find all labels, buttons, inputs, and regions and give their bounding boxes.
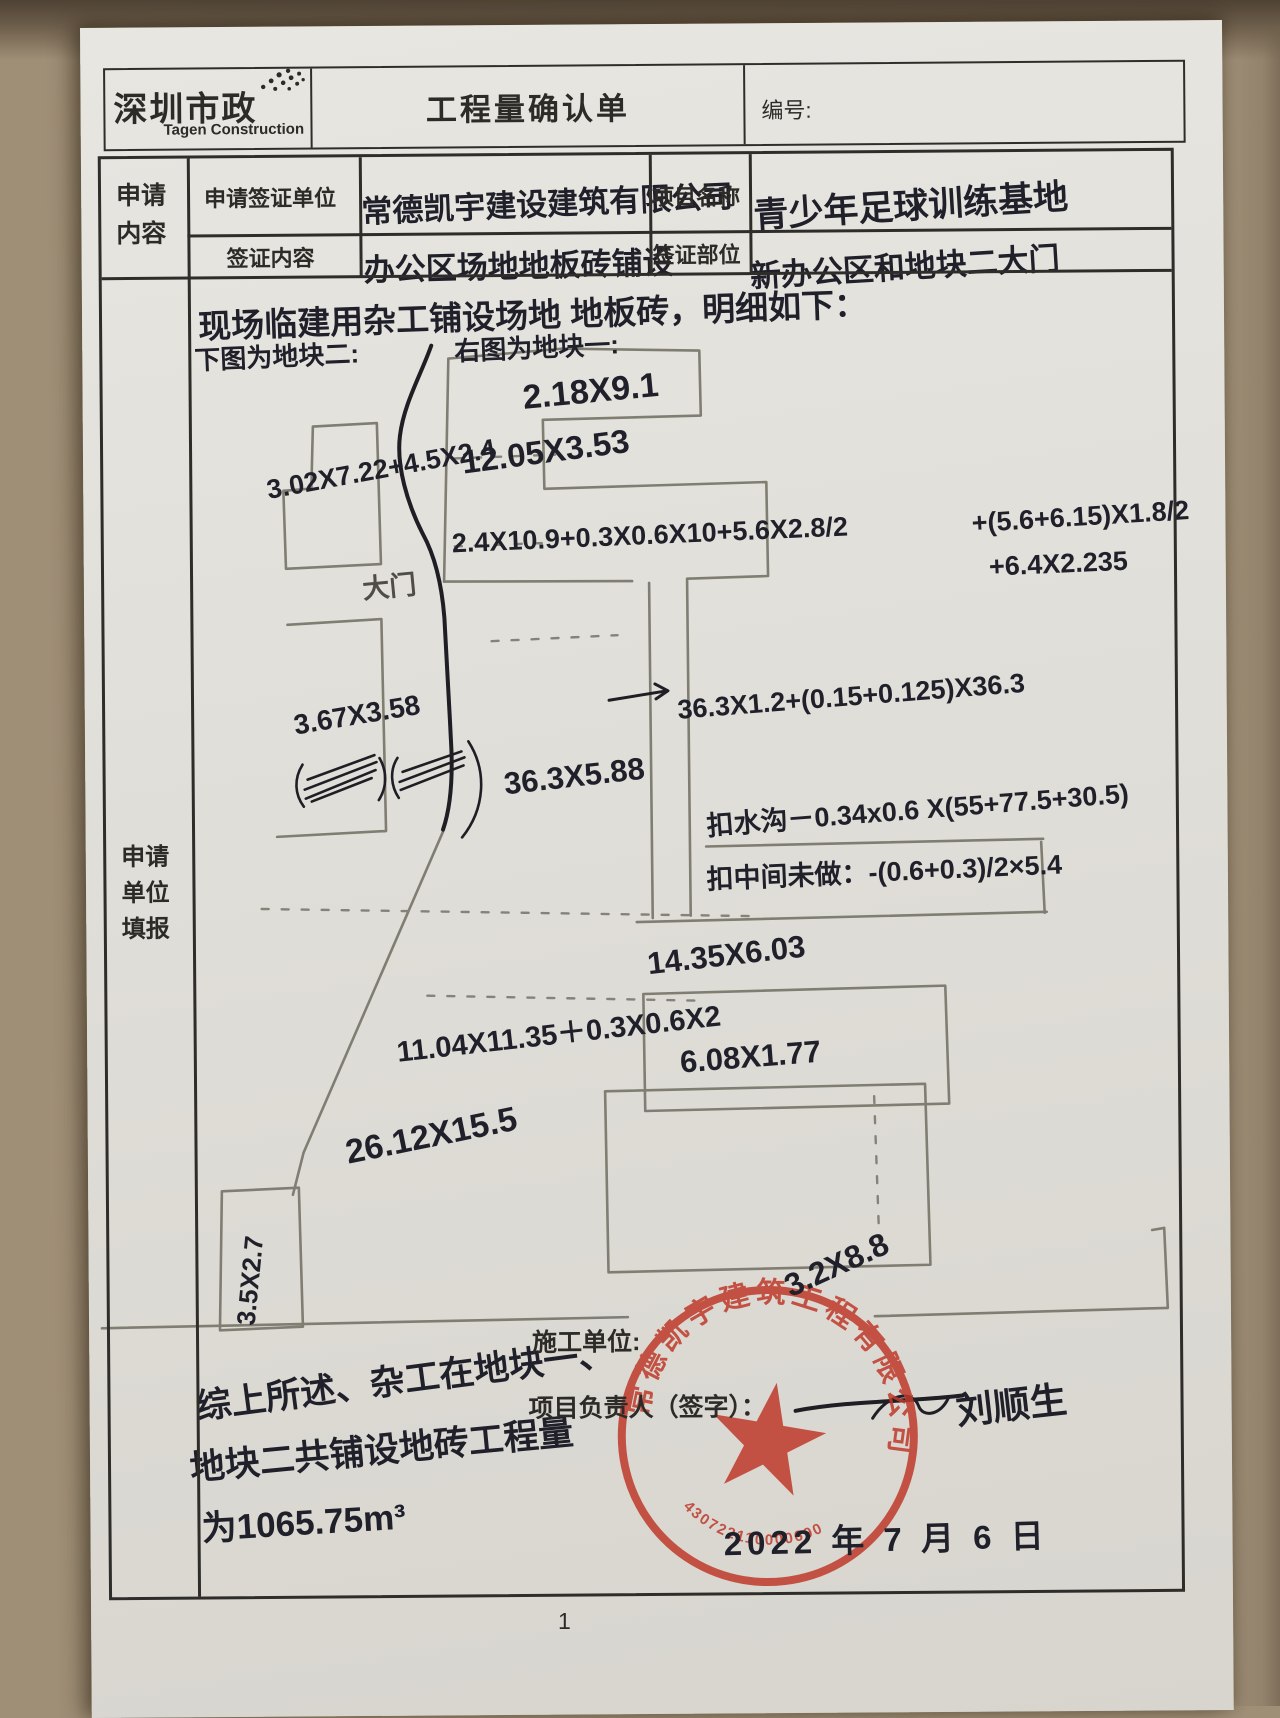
logo-subtitle: Tagen Construction <box>163 121 304 139</box>
main-table <box>98 148 1185 1600</box>
table-line <box>187 227 1171 237</box>
table-line <box>749 154 752 274</box>
table-line <box>359 157 362 277</box>
section-label-applicant-fill: 申请单位填报 <box>119 840 172 948</box>
logo-dots-icon <box>255 65 307 95</box>
serial-label: 编号: <box>761 93 811 125</box>
scanned-form-photo: 深圳市政 Tagen Construction 工程量确认单 编号: <box>0 0 1280 1706</box>
serial-cell: 编号: <box>745 62 1184 144</box>
form-title-cell: 工程量确认单 <box>312 65 746 147</box>
logo-block: 深圳市政 Tagen Construction <box>105 69 313 150</box>
label-project-name: 项目名称 <box>651 179 741 212</box>
page-number: 1 <box>558 1608 571 1635</box>
section-label-apply-content: 申请内容 <box>113 178 170 253</box>
form-title: 工程量确认单 <box>426 83 630 130</box>
label-visa-content: 签证内容 <box>189 240 351 273</box>
label-visa-part: 签证部位 <box>651 237 741 270</box>
table-line <box>187 159 201 1597</box>
label-apply-unit: 申请签证单位 <box>189 180 351 213</box>
header-box: 深圳市政 Tagen Construction 工程量确认单 编号: <box>103 60 1186 151</box>
